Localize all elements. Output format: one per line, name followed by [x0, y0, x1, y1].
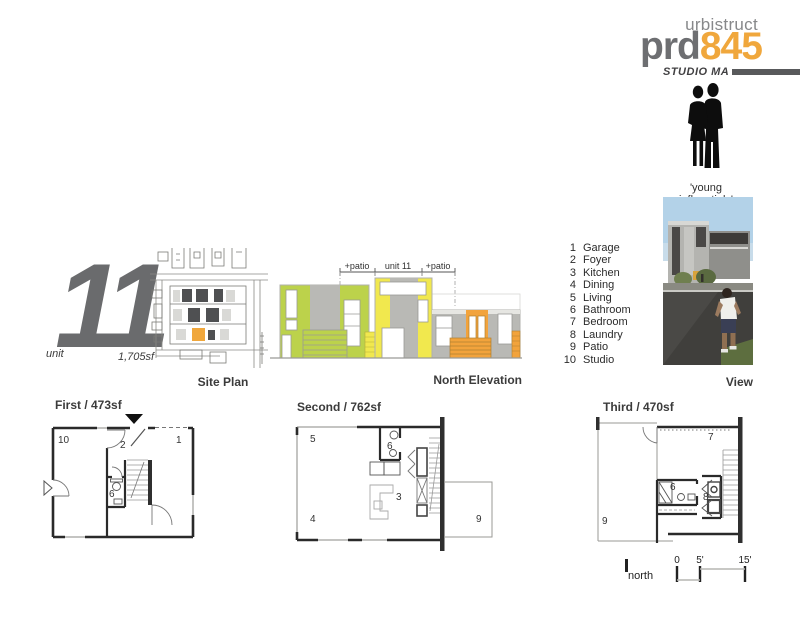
- room-label-garage: 1: [176, 435, 182, 446]
- entry-marker: [125, 414, 143, 424]
- elevation-left-building: [280, 285, 369, 358]
- room-label-bath: 6: [387, 441, 393, 452]
- couple-silhouette-icon: [680, 82, 732, 172]
- legend-item: 7Bedroom: [560, 316, 631, 328]
- legend-item: 6Bathroom: [560, 304, 631, 316]
- bath-fixtures: [659, 482, 695, 503]
- elevation-unit11-building: [375, 278, 432, 358]
- site-plan-highlighted-unit: [192, 328, 205, 341]
- elevation-drawing: +patio unit 11 +patio: [270, 256, 522, 366]
- legend-item: 9Patio: [560, 341, 631, 353]
- second-floor-plan: Second / 762sf: [290, 400, 504, 552]
- third-floor-plan: Third / 470sf: [588, 400, 760, 550]
- patio-outline: [444, 482, 492, 537]
- brand-logo-845: 845: [700, 25, 762, 68]
- third-floor-drawing: 7 6 8 9: [588, 406, 760, 551]
- room-label-bedroom: 7: [708, 432, 714, 443]
- room-label-living: 5: [310, 434, 316, 445]
- brand-band-bar: [732, 69, 800, 75]
- legend-item: 5Living: [560, 292, 631, 304]
- view-figure: View: [663, 197, 753, 389]
- entry-door-leaf: [131, 429, 145, 446]
- elevation-patio-fence: [365, 332, 375, 358]
- dim-label-patio-left: +patio: [345, 261, 370, 271]
- legend-item: 2Foyer: [560, 254, 631, 266]
- scale-tick-5: 5': [696, 555, 704, 566]
- room-label-bath: 6: [670, 482, 676, 493]
- room-legend: 1Garage 2Foyer 3Kitchen 4Dining 5Living …: [560, 242, 631, 366]
- view-label: View: [663, 375, 753, 389]
- scale-bar: 0 5' 15': [668, 552, 758, 586]
- legend-item: 3Kitchen: [560, 267, 631, 279]
- site-plan-label: Site Plan: [178, 375, 268, 389]
- first-floor-drawing: 10 2 1 6: [40, 410, 202, 550]
- presentation-sheet: urbistruct prd845 STUDIO MA 'young influ…: [0, 0, 800, 618]
- second-floor-drawing: 5 6 3 4 9: [290, 408, 504, 560]
- room-label-bath: 6: [109, 489, 115, 500]
- elevation-right-building: [432, 310, 520, 358]
- scale-tick-0: 0: [674, 555, 680, 566]
- brand-logo: prd845: [640, 27, 758, 66]
- legend-item: 1Garage: [560, 242, 631, 254]
- studio-ma-label: STUDIO MA: [663, 66, 729, 78]
- scale-tick-15: 15': [738, 555, 751, 566]
- room-label-studio: 10: [58, 435, 70, 446]
- unit-number: 11: [55, 258, 162, 354]
- room-label-kitchen: 3: [396, 492, 402, 503]
- laundry-fixtures: [708, 482, 720, 513]
- stairs: [723, 450, 738, 518]
- unit-area: 1,705sf: [118, 351, 154, 363]
- stairs: [429, 438, 440, 513]
- north-marker: north: [625, 559, 653, 582]
- legend-item: 4Dining: [560, 279, 631, 291]
- dim-label-unit: unit 11: [385, 261, 411, 271]
- site-plan-figure: Site Plan: [150, 246, 268, 389]
- brand-logo-prd: prd: [640, 25, 700, 68]
- party-wall: [738, 417, 743, 543]
- unit-label: unit: [46, 348, 64, 360]
- dim-label-patio-right: +patio: [426, 261, 451, 271]
- party-wall: [440, 417, 445, 551]
- room-label-patio: 9: [602, 516, 608, 527]
- room-label-laundry: 8: [703, 492, 709, 503]
- legend-item: 10Studio: [560, 354, 631, 366]
- side-entry-marker: [44, 481, 52, 495]
- room-label-patio: 9: [476, 514, 482, 525]
- elevation-label: North Elevation: [270, 373, 522, 387]
- room-label-foyer: 2: [120, 440, 126, 451]
- legend-item: 8Laundry: [560, 329, 631, 341]
- north-label: north: [628, 570, 653, 582]
- room-label-dining: 4: [310, 514, 316, 525]
- site-plan-drawing: [150, 246, 268, 368]
- brand-band: STUDIO MA: [663, 66, 800, 78]
- view-photo: [663, 197, 753, 365]
- persona-block: 'young influentials': [662, 82, 750, 206]
- kitchen-island: [370, 485, 393, 519]
- elevation-figure: +patio unit 11 +patio: [270, 256, 522, 387]
- first-floor-plan: First / 473sf: [40, 398, 202, 550]
